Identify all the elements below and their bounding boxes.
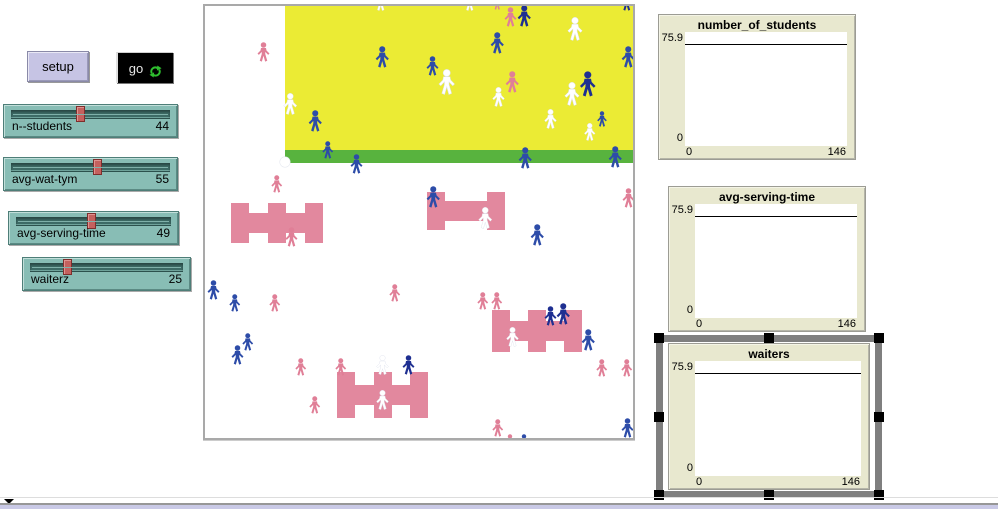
slider-track[interactable] xyxy=(16,217,171,226)
person-pink xyxy=(504,434,516,438)
y-axis-min-label: 0 xyxy=(669,304,693,316)
person-blue xyxy=(307,110,324,132)
person-pink xyxy=(621,188,634,208)
person-blue xyxy=(349,154,364,174)
resize-handle[interactable] xyxy=(874,333,884,343)
y-axis-min-label: 0 xyxy=(659,132,683,144)
plot-number-of-students[interactable]: number_of_students 75.9 0 0 146 xyxy=(658,14,856,160)
person-pink xyxy=(294,358,308,376)
person-pink xyxy=(270,175,284,193)
person-pink xyxy=(308,396,322,414)
person-blue xyxy=(228,294,242,312)
person-white xyxy=(491,87,506,107)
person-white xyxy=(583,123,597,141)
resize-handle[interactable] xyxy=(654,333,664,343)
setup-button[interactable]: setup xyxy=(27,51,89,82)
counter-strip-patch xyxy=(285,150,633,163)
person-pink xyxy=(490,292,504,310)
x-axis-min-label: 0 xyxy=(696,476,702,488)
person-white xyxy=(282,93,299,115)
x-axis-min-label: 0 xyxy=(696,318,702,330)
x-axis-min-label: 0 xyxy=(686,146,692,158)
forever-loop-icon xyxy=(149,65,162,78)
person-blue xyxy=(489,32,506,54)
person-blue xyxy=(374,46,391,68)
plot-pen-line xyxy=(685,44,847,45)
resize-handle[interactable] xyxy=(764,490,774,500)
y-axis-max-label: 75.9 xyxy=(669,204,693,216)
person-blue xyxy=(206,280,221,300)
person-pink xyxy=(256,42,271,62)
person-blue xyxy=(517,147,534,169)
slider-track[interactable] xyxy=(11,110,170,119)
plot-waiters[interactable]: waiters 75.9 0 0 146 xyxy=(668,343,870,490)
person-white xyxy=(374,6,388,11)
person-blue xyxy=(425,186,442,208)
person-pink xyxy=(595,359,609,377)
person-navy xyxy=(555,303,572,325)
plot-pen-line xyxy=(695,216,857,217)
person-white xyxy=(375,355,390,375)
slider-avg-wat-tym[interactable]: avg-wat-tym 55 xyxy=(3,157,178,191)
person-navy xyxy=(578,71,598,97)
slider-value: 44 xyxy=(156,119,169,133)
plot-pen-line xyxy=(695,373,861,374)
person-navy xyxy=(516,6,533,27)
y-axis-max-label: 75.9 xyxy=(669,361,693,373)
person-blue xyxy=(518,434,530,438)
person-blue xyxy=(620,418,634,438)
person-white xyxy=(543,109,558,129)
slider-track[interactable] xyxy=(30,263,183,272)
slider-label: avg-serving-time xyxy=(17,226,106,240)
y-axis-min-label: 0 xyxy=(669,462,693,474)
y-axis-max-label: 75.9 xyxy=(659,32,683,44)
person-white xyxy=(375,390,390,410)
white-dot xyxy=(280,157,290,167)
slider-value: 55 xyxy=(156,172,169,186)
person-blue xyxy=(321,141,335,159)
plot-area xyxy=(695,204,857,318)
person-blue xyxy=(607,146,624,168)
slider-value: 49 xyxy=(157,226,170,240)
person-white xyxy=(566,17,584,41)
resize-handle[interactable] xyxy=(874,412,884,422)
dining-table xyxy=(231,203,323,243)
person-blue xyxy=(529,224,546,246)
person-pink xyxy=(492,6,503,10)
go-button[interactable]: go xyxy=(116,52,173,83)
person-blue xyxy=(580,329,597,351)
slider-track[interactable] xyxy=(11,163,170,172)
resize-handle[interactable] xyxy=(654,412,664,422)
person-navy xyxy=(401,355,416,375)
person-navy xyxy=(620,6,633,11)
window-bottom-strip xyxy=(0,505,998,509)
plot-area xyxy=(685,32,847,146)
person-white xyxy=(563,82,581,106)
person-white xyxy=(463,6,477,11)
world-view[interactable] xyxy=(203,4,635,440)
slider-n-students[interactable]: n--students 44 xyxy=(3,104,178,138)
person-pink xyxy=(491,419,505,437)
slider-waiterz[interactable]: waiterz 25 xyxy=(22,257,191,291)
resize-handle[interactable] xyxy=(874,490,884,500)
person-pink xyxy=(620,359,633,377)
resize-handle[interactable] xyxy=(764,333,774,343)
person-pink xyxy=(504,71,521,93)
slider-label: n--students xyxy=(12,119,72,133)
plot-title: avg-serving-time xyxy=(669,190,865,204)
person-blue xyxy=(596,111,608,127)
person-white xyxy=(505,327,520,347)
plot-avg-serving-time[interactable]: avg-serving-time 75.9 0 0 146 xyxy=(668,186,866,332)
x-axis-max-label: 146 xyxy=(828,146,846,158)
person-pink xyxy=(268,294,282,312)
plot-area xyxy=(695,361,861,476)
x-axis-max-label: 146 xyxy=(842,476,860,488)
resize-handle[interactable] xyxy=(654,490,664,500)
slider-label: avg-wat-tym xyxy=(12,172,77,186)
person-pink xyxy=(476,292,490,310)
window-bottom-edge xyxy=(0,497,998,498)
person-pink xyxy=(334,358,348,376)
go-button-label: go xyxy=(129,61,143,76)
plot-title: number_of_students xyxy=(659,18,855,32)
x-axis-max-label: 146 xyxy=(838,318,856,330)
person-pink xyxy=(388,284,402,302)
person-pink xyxy=(284,227,299,247)
slider-avg-serving-time[interactable]: avg-serving-time 49 xyxy=(8,211,179,245)
plot-title: waiters xyxy=(669,347,869,361)
person-blue xyxy=(620,46,633,68)
person-blue xyxy=(230,345,245,365)
slider-value: 25 xyxy=(169,272,182,286)
world-canvas xyxy=(205,6,633,438)
person-white xyxy=(437,69,457,95)
person-white xyxy=(477,207,494,229)
slider-label: waiterz xyxy=(31,272,69,286)
